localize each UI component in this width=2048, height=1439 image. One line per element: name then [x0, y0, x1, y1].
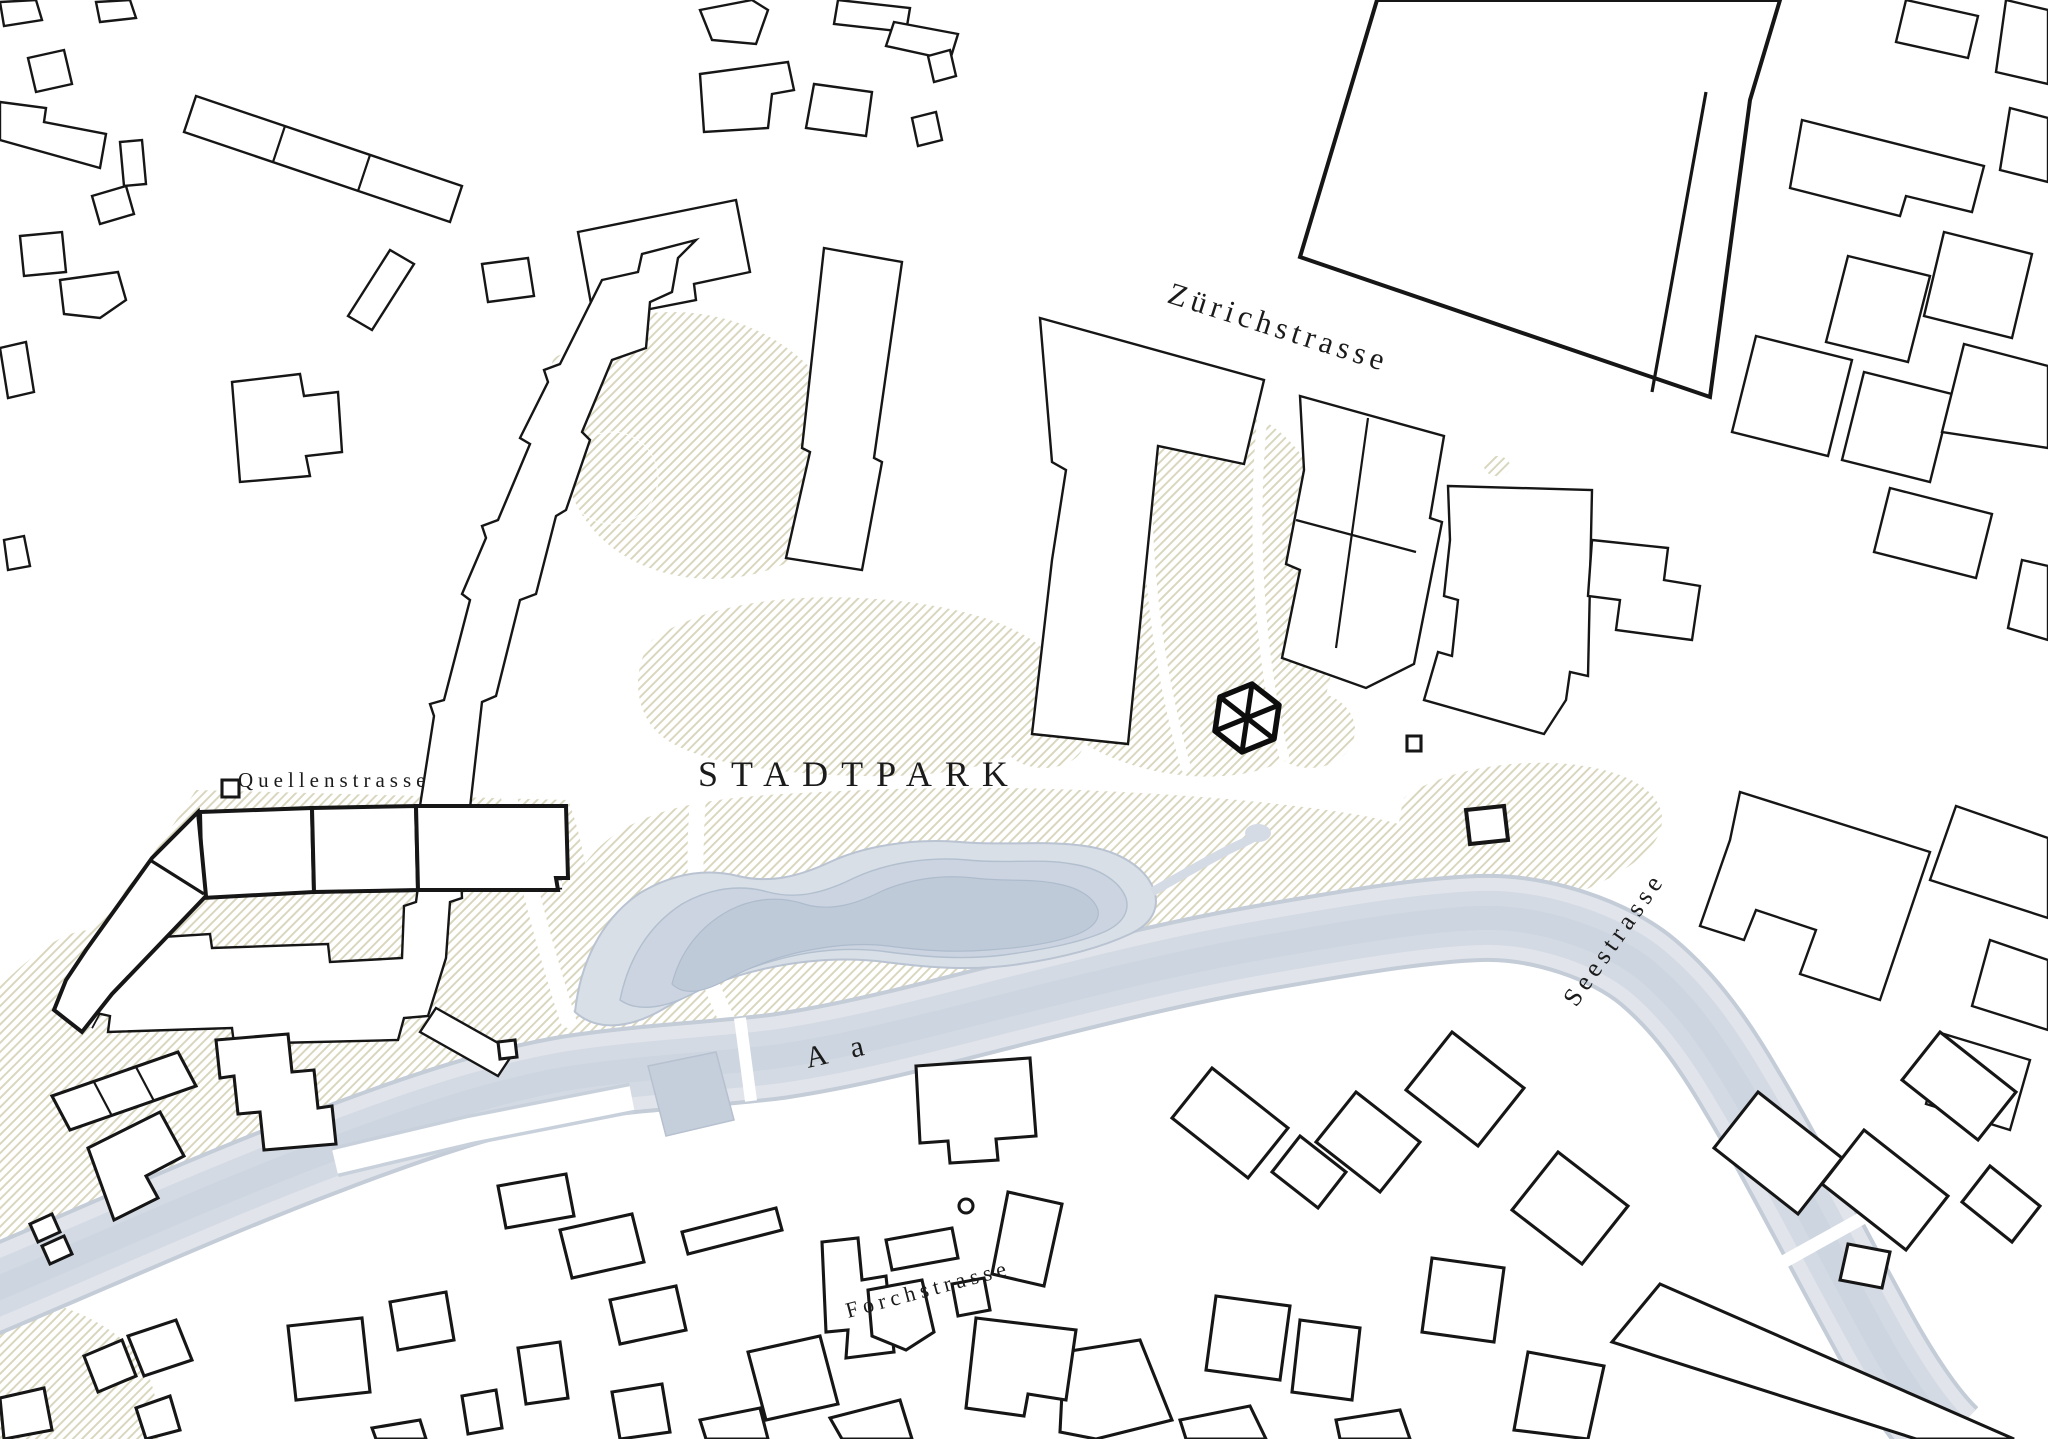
building: [2000, 108, 2048, 182]
building: [1840, 1244, 1890, 1288]
building: [682, 1208, 782, 1254]
building: [1512, 1152, 1628, 1264]
building: [1406, 1032, 1524, 1146]
building: [560, 1214, 644, 1278]
building: [1060, 1340, 1172, 1439]
park-patch: [1484, 456, 1510, 476]
site-plan-map: STADTPARK Zürichstrasse Quellenstrasse S…: [0, 0, 2048, 1439]
building: [1874, 488, 1992, 578]
building-quellenstrasse: [416, 806, 568, 890]
building: [1962, 1166, 2040, 1242]
building: [372, 1420, 426, 1439]
building: [1972, 940, 2048, 1030]
building: [1700, 792, 1930, 1000]
building: [1896, 0, 1978, 58]
building: [1842, 372, 1952, 482]
building-quellenstrasse: [200, 808, 314, 898]
building: [498, 1174, 574, 1228]
building: [1942, 344, 2048, 448]
building-bold-square: [1466, 806, 1508, 844]
small-structure: [222, 780, 239, 797]
building: [886, 1228, 958, 1270]
building: [912, 112, 942, 146]
building: [916, 1058, 1036, 1163]
small-structure: [1407, 736, 1421, 751]
building: [1422, 1258, 1504, 1342]
building: [92, 186, 134, 224]
building: [612, 1384, 670, 1439]
small-structure: [959, 1199, 973, 1213]
building: [1206, 1296, 1290, 1380]
building: [1336, 1410, 1410, 1439]
building: [1732, 336, 1852, 456]
building: [700, 0, 768, 44]
building: [120, 140, 146, 186]
building: [928, 50, 956, 82]
building: [2008, 560, 2048, 640]
building: [1924, 232, 2032, 338]
site-marker-icon[interactable]: [1215, 684, 1279, 752]
building: [288, 1318, 370, 1400]
park-lawn-central: [638, 597, 1058, 776]
label-quellenstrasse: Quellenstrasse: [238, 768, 430, 792]
building: [1292, 1320, 1360, 1400]
building: [966, 1318, 1076, 1416]
building: [1172, 1068, 1288, 1178]
building: [610, 1286, 686, 1344]
building: [1588, 540, 1700, 640]
building: [1424, 486, 1592, 734]
building: [348, 250, 414, 330]
map-canvas: STADTPARK Zürichstrasse Quellenstrasse S…: [0, 0, 2048, 1439]
building: [1790, 120, 1984, 216]
building: [0, 102, 106, 168]
building: [748, 1336, 838, 1420]
building: [96, 0, 136, 22]
building: [700, 62, 794, 132]
building: [20, 232, 66, 276]
building: [1282, 396, 1444, 688]
building: [0, 0, 42, 26]
building: [806, 84, 872, 136]
building: [518, 1342, 568, 1404]
building: [700, 1408, 768, 1439]
building: [0, 1388, 52, 1439]
building: [390, 1292, 454, 1350]
building-quellenstrasse: [312, 806, 418, 892]
building: [0, 342, 34, 398]
building: [462, 1390, 502, 1434]
building: [232, 374, 342, 482]
label-stadtpark: STADTPARK: [698, 754, 1021, 794]
building-row: [184, 96, 462, 222]
pond-inlet-bulb: [1245, 824, 1271, 842]
building: [1514, 1352, 1604, 1439]
small-structure: [498, 1040, 517, 1059]
building: [28, 50, 72, 92]
building: [1930, 806, 2048, 918]
building: [1826, 256, 1930, 362]
building: [482, 258, 534, 302]
building: [1180, 1406, 1266, 1439]
building: [830, 1400, 912, 1439]
building: [1996, 0, 2048, 84]
building: [60, 272, 126, 318]
building: [4, 536, 30, 570]
